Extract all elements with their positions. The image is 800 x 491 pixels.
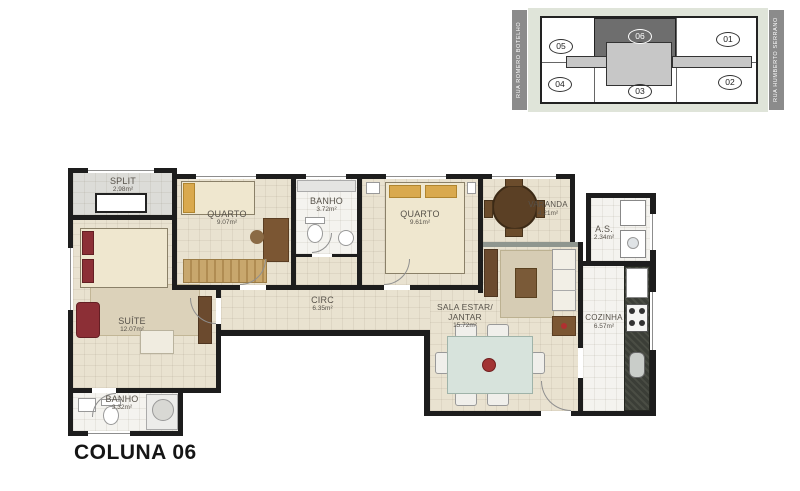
chair-icon xyxy=(250,230,264,244)
tv-rack-icon xyxy=(484,249,498,297)
window-line xyxy=(652,292,653,350)
burner-icon xyxy=(639,320,645,326)
sofa-cushion-line xyxy=(552,269,576,270)
window xyxy=(650,214,656,250)
wall xyxy=(216,330,430,336)
sink-icon xyxy=(338,230,354,246)
burner-icon xyxy=(629,320,635,326)
room-label-varanda: VARANDA 4,21m² xyxy=(520,201,576,217)
pillow-icon xyxy=(82,231,94,255)
keyplan-unit-04: 04 xyxy=(548,77,572,92)
shower-tray-icon xyxy=(297,180,356,192)
wall xyxy=(178,388,183,436)
room-label-banho-1: BANHO 3.72m² xyxy=(298,196,355,213)
burner-icon xyxy=(629,308,635,314)
wall xyxy=(172,168,177,290)
sofa-cushion-line xyxy=(552,290,576,291)
page-title: COLUNA 06 xyxy=(74,441,197,465)
floor-hall-banho xyxy=(296,257,357,285)
keyplan-corridor-left xyxy=(566,56,610,68)
kitchen-sink-icon xyxy=(629,352,645,378)
dining-chair-icon xyxy=(487,392,509,406)
wall xyxy=(424,330,430,416)
wall xyxy=(68,215,172,220)
window-line xyxy=(652,214,653,250)
wall xyxy=(68,388,221,393)
nightstand-icon xyxy=(366,182,380,194)
pillow-icon xyxy=(389,185,421,198)
room-label-quarto-1: QUARTO 9.07m² xyxy=(192,209,262,226)
decor-icon xyxy=(561,323,567,329)
keyplan-unit-06: 06 xyxy=(628,29,652,44)
room-label-sala: SALA ESTAR/ JANTAR 15.72m² xyxy=(425,303,505,329)
room-label-circ: CIRC 6.35m² xyxy=(295,295,350,312)
chair-icon xyxy=(505,228,523,237)
window-line xyxy=(196,176,256,177)
door-gap xyxy=(578,348,583,378)
wall xyxy=(583,261,656,266)
room-label-split: SPLIT 2.98m² xyxy=(86,176,160,193)
dining-chair-icon xyxy=(531,352,545,374)
toilet-tank-icon xyxy=(305,217,325,224)
coffee-table-icon xyxy=(515,268,537,298)
door-gap xyxy=(312,254,332,257)
window-line xyxy=(88,170,154,171)
wall xyxy=(586,193,656,198)
room-label-cozinha: COZINHA 6.57m² xyxy=(579,314,629,330)
entry-door-gap xyxy=(541,411,571,416)
laundry-tub-icon xyxy=(620,200,646,226)
door-gap xyxy=(384,285,410,290)
door-gap xyxy=(240,285,266,290)
keyplan-corridor-right xyxy=(672,56,752,68)
keyplan-unit-01: 01 xyxy=(716,32,740,47)
keyplan-core xyxy=(606,42,672,86)
centerpiece-icon xyxy=(482,358,496,372)
keyplan-unit-05: 05 xyxy=(549,39,573,54)
pillow-icon xyxy=(425,185,457,198)
shower-drain-icon xyxy=(152,399,174,421)
fridge-icon xyxy=(626,268,648,298)
ottoman-icon xyxy=(140,330,174,354)
wall xyxy=(357,174,362,290)
dining-chair-icon xyxy=(455,392,477,406)
window xyxy=(650,292,656,350)
street-label-left: RUA ROMERO BOTELHO xyxy=(512,10,527,110)
window-line xyxy=(386,176,446,177)
nightstand-icon xyxy=(467,182,476,194)
keyplan-unit-03: 03 xyxy=(628,84,652,99)
keyplan-unit-02: 02 xyxy=(718,75,742,90)
glass-door xyxy=(483,242,578,247)
keyplan-building: 05 06 01 04 03 02 xyxy=(540,16,758,104)
wall xyxy=(478,174,483,293)
door-gap xyxy=(216,298,221,324)
pillow-icon xyxy=(82,259,94,283)
street-label-right: RUA HUMBERTO SERRANO xyxy=(769,10,784,110)
window-line xyxy=(492,176,556,177)
desk-icon xyxy=(263,218,289,262)
wall xyxy=(424,411,656,416)
window-line xyxy=(70,248,71,310)
chair-icon xyxy=(484,200,493,218)
room-label-quarto-2: QUARTO 9.61m² xyxy=(380,209,460,226)
armchair-icon xyxy=(76,302,100,338)
window-line xyxy=(306,176,346,177)
burner-icon xyxy=(639,308,645,314)
wall xyxy=(291,174,296,290)
washer-door-icon xyxy=(627,237,639,249)
ac-unit-icon xyxy=(95,193,147,213)
room-label-banho-2: BANHO 3.32m² xyxy=(96,394,148,411)
window-line xyxy=(88,433,130,434)
chair-icon xyxy=(505,178,523,187)
room-label-suite: SUÍTE 12.07m² xyxy=(100,316,164,333)
room-label-as: A.S. 2.34m² xyxy=(588,224,620,241)
floorplan-page: { "title": "COLUNA 06", "keyplan": { "st… xyxy=(0,0,800,491)
sofa-icon xyxy=(552,249,576,311)
